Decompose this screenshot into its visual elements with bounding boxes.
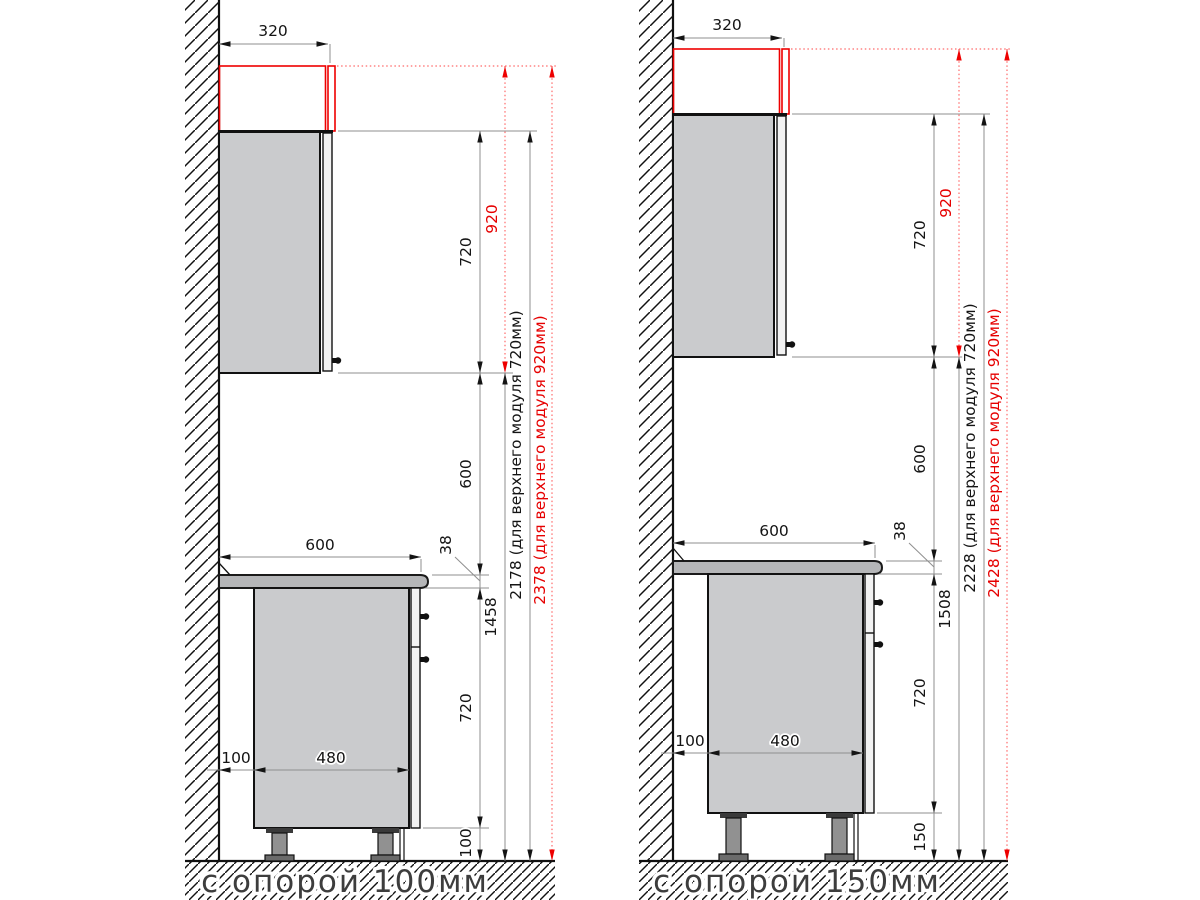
base-cabinet-body [708,574,863,813]
base-cabinet-front [411,588,420,828]
dim-leg-height: 150 [911,822,929,852]
dim-upper-height: 720 [457,237,475,267]
dim-leg-height: 100 [457,828,475,858]
dim-base-height: 720 [457,693,475,723]
cabinet-leg-rear [719,813,748,861]
base-cabinet-knob-bottom [420,656,429,662]
dim-total-720: 2178 (для верхнего модуля 720мм) [507,310,525,599]
dim-base-depth: 480 [770,732,800,750]
cabinet-leg-rear [265,828,294,861]
dim-upper-height-alt: 920 [483,204,501,234]
dim-upper-height: 720 [911,220,929,250]
countertop [219,575,428,588]
base-cabinet-knob-top [874,599,883,605]
wall-hatch [185,0,219,861]
dim-counter-thickness: 38 [437,535,455,555]
diagram-support-100: 320 720 920 600 38 1458 720 100 600 100 … [185,0,558,900]
kitchen-mounting-drawing: 320 720 920 600 38 1458 720 100 600 100 … [0,0,1200,900]
wall-hatch [639,0,673,861]
upper-cabinet-knob [786,341,795,347]
base-cabinet-body [254,588,409,828]
counter-wall-seal [219,563,230,575]
dim-top-depth: 320 [712,16,742,34]
cabinet-leg-front [825,813,854,861]
dim-gap: 600 [457,459,475,489]
upper-cabinet-door [323,133,332,371]
base-cabinet-knob-top [420,613,429,619]
dim-floor-to-upper: 1458 [482,597,500,636]
floor-support-label-100: с опорой 100мм [201,864,489,900]
dim-counter-depth: 600 [305,536,335,554]
dim-top-depth: 320 [258,22,288,40]
diagram-support-150: 320 720 920 600 38 1508 720 150 600 100 … [639,0,1012,900]
upper-extension-zone-920 [220,66,326,131]
upper-extension-door-strip [782,49,789,114]
upper-extension-door-strip [328,66,335,131]
upper-cabinet-door [777,116,786,355]
dim-wall-gap: 100 [221,749,251,767]
upper-cabinet-body [673,114,774,357]
dim-counter-depth: 600 [759,522,789,540]
upper-cabinet-knob [332,357,341,363]
countertop [673,561,882,574]
dim-base-height: 720 [911,678,929,708]
dim-upper-height-alt: 920 [937,188,955,218]
base-cabinet-front [865,574,874,813]
base-cabinet-knob-bottom [874,641,883,647]
counter-wall-seal [673,548,684,561]
dim-total-920: 2378 (для верхнего модуля 920мм) [531,315,549,604]
dim-floor-to-upper: 1508 [936,589,954,628]
dim-wall-gap: 100 [675,732,705,750]
dim-base-depth: 480 [316,749,346,767]
dim-counter-thickness: 38 [891,521,909,541]
floor-support-label-150: с опорой 150мм [653,864,941,900]
dim-total-920: 2428 (для верхнего модуля 920мм) [985,308,1003,597]
dim-gap: 600 [911,444,929,474]
dim-total-720: 2228 (для верхнего модуля 720мм) [961,303,979,592]
cabinet-leg-front [371,828,400,861]
upper-extension-zone-920 [674,49,780,114]
upper-cabinet-body [219,131,320,373]
technical-drawing-canvas: 320 720 920 600 38 1458 720 100 600 100 … [0,0,1200,900]
